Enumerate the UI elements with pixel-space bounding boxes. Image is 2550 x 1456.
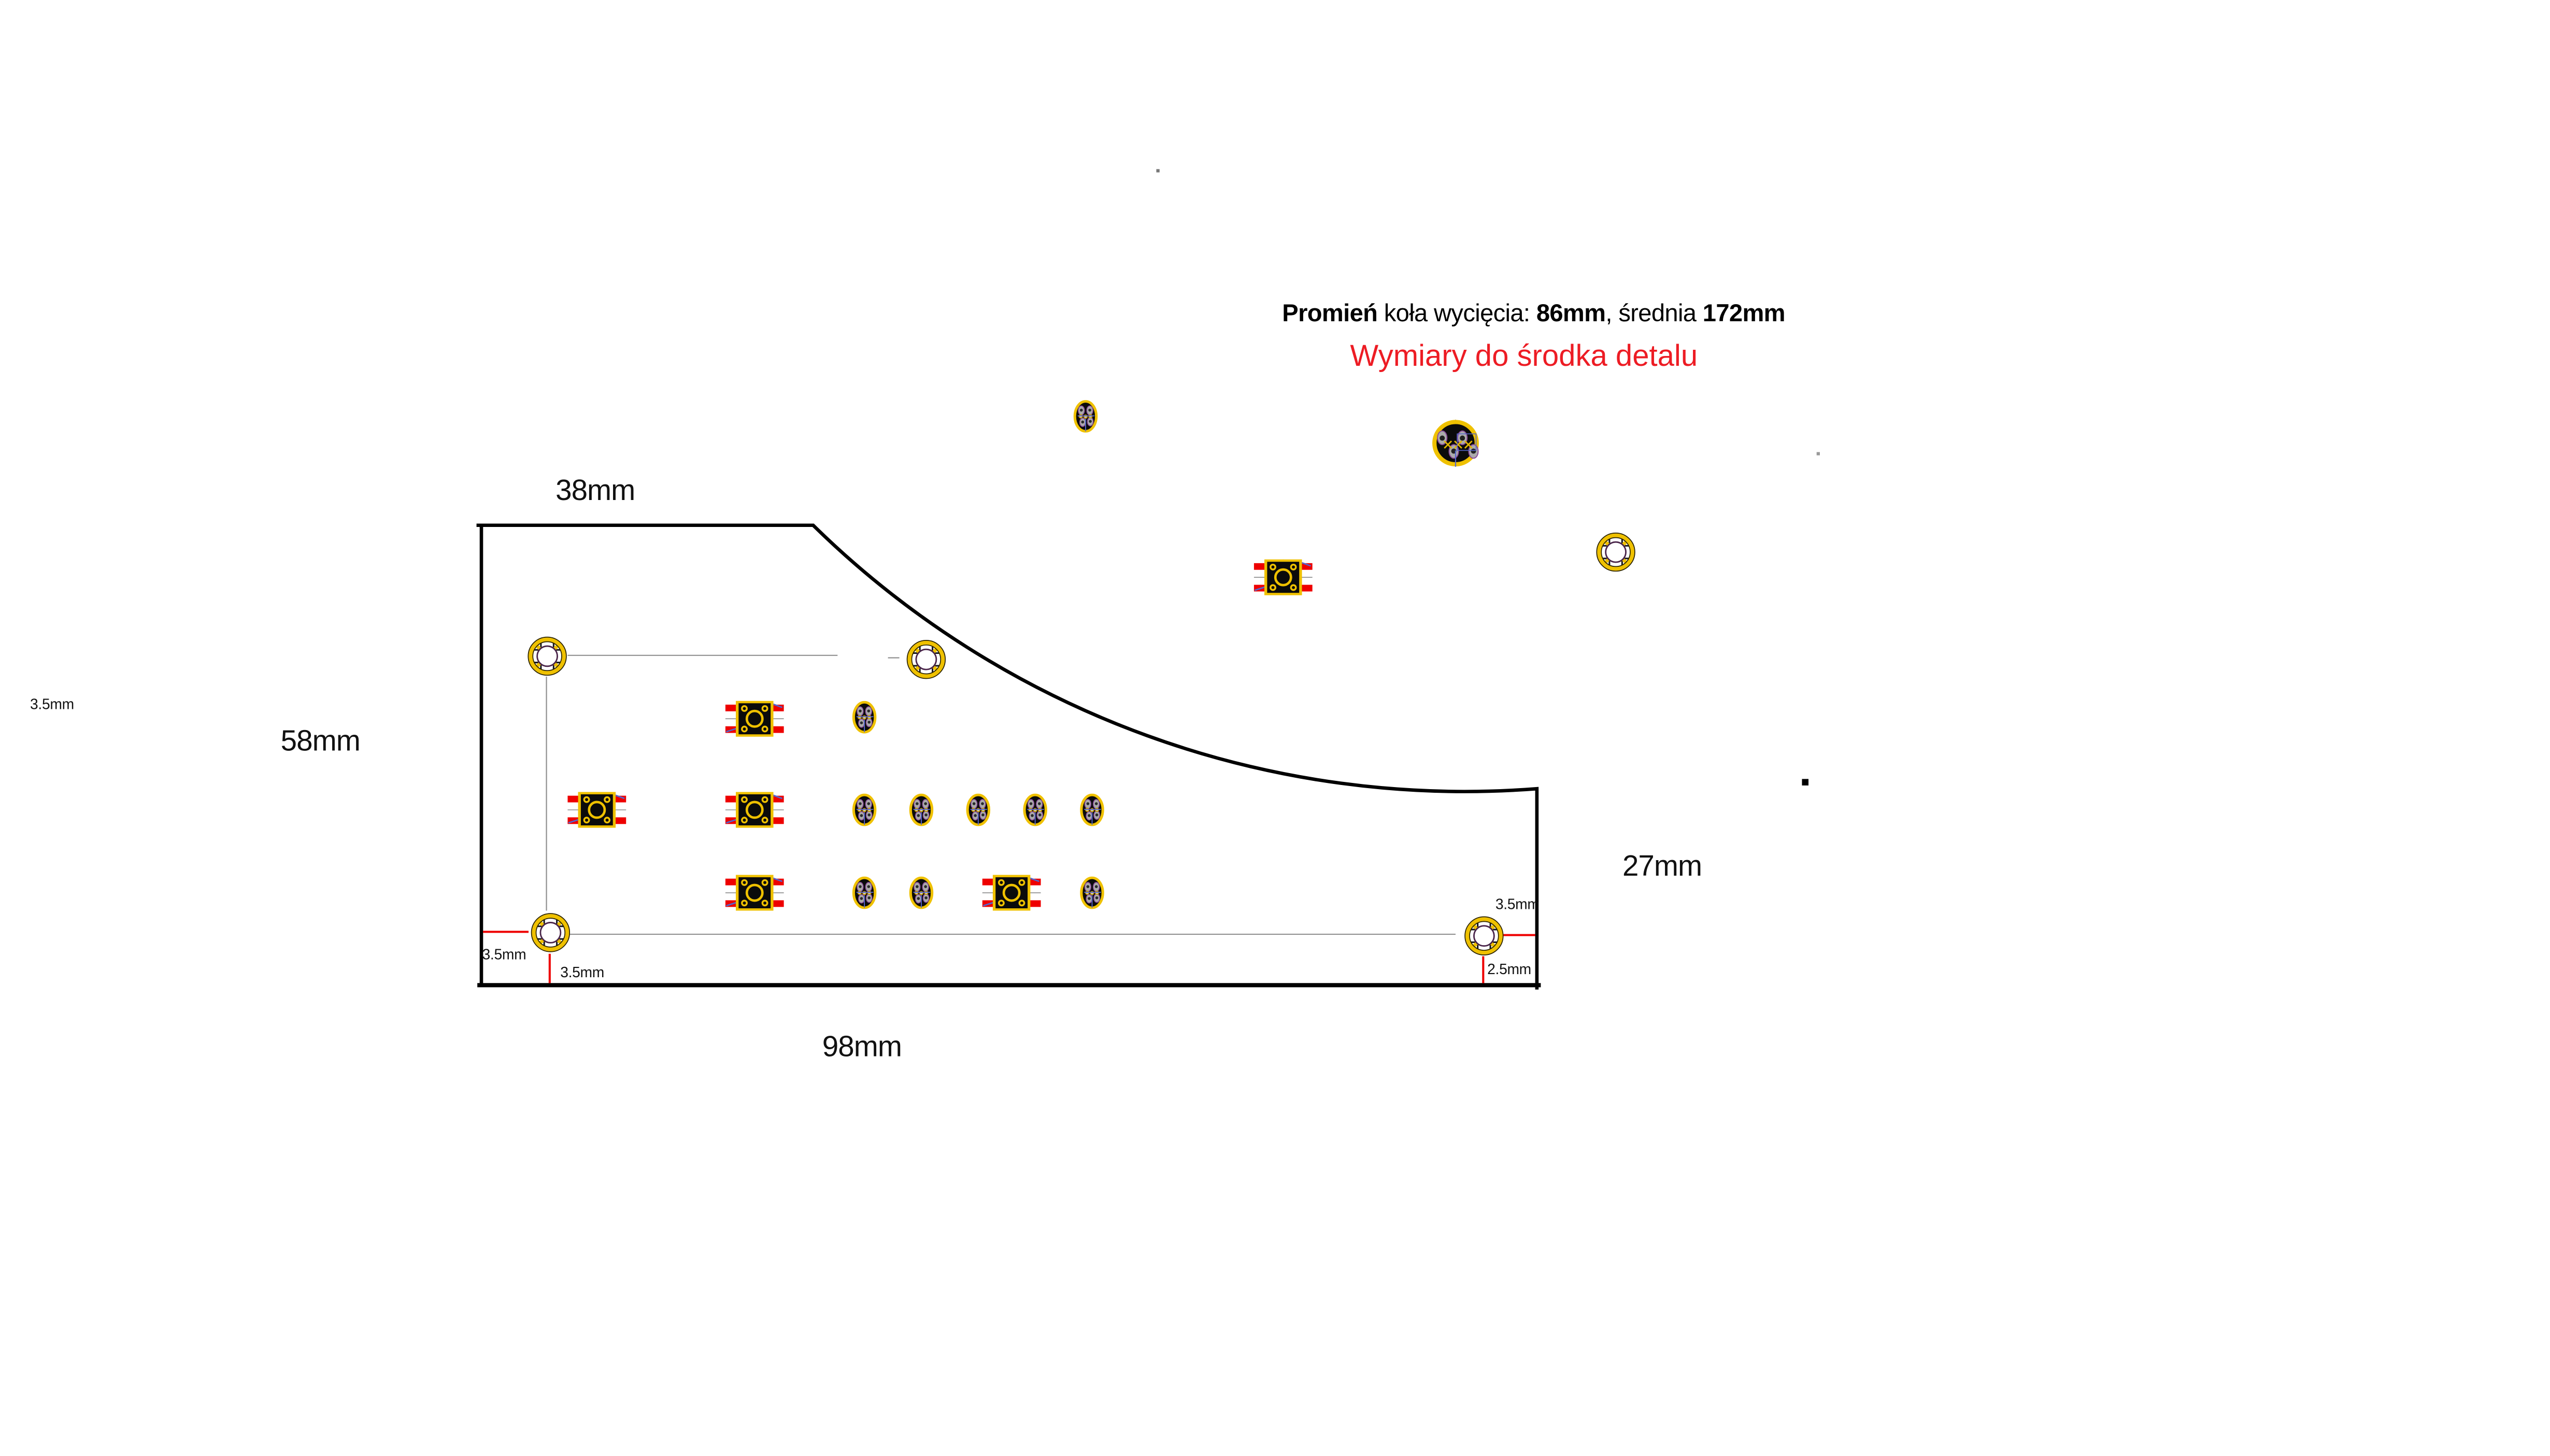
- small-button-footprint: [1079, 794, 1103, 826]
- trimmer-footprint: [1431, 417, 1480, 467]
- small-button-footprint: [851, 794, 876, 826]
- stray-speck: [1817, 452, 1820, 456]
- small-button-footprint-glyph: [851, 701, 876, 734]
- cutout-note-segment: 172mm: [1703, 300, 1785, 327]
- mounting-hole-glyph: [905, 638, 946, 679]
- small-button-footprint: [851, 701, 876, 734]
- tact-switch-glyph: [982, 875, 1041, 911]
- small-button-footprint: [965, 794, 990, 826]
- dimensions-reference-note: Wymiary do środka detalu: [1350, 338, 1698, 374]
- cutout-note-segment: , średnia: [1605, 300, 1702, 327]
- tact-switch-glyph: [567, 792, 626, 827]
- small-button-footprint: [908, 877, 933, 909]
- board-outline-top-and-arc-and-right: [477, 525, 1537, 990]
- dim-hole-br-y: 2.5mm: [1487, 961, 1531, 977]
- dim-hole-br-x: 3.5mm: [1495, 896, 1540, 912]
- stray-speck: [1156, 169, 1159, 173]
- tact-switch: [1254, 560, 1313, 595]
- dim-hole-bl-x: 3.5mm: [482, 947, 526, 963]
- mounting-hole: [1463, 915, 1503, 955]
- tact-switch-glyph: [725, 701, 784, 737]
- drawing-scale-wrapper: Promień koła wycięcia: 86mm, średnia 172…: [0, 0, 2550, 1455]
- small-button-footprint-glyph: [1022, 794, 1047, 826]
- tact-switch-glyph: [725, 792, 784, 827]
- mounting-hole: [530, 911, 570, 952]
- red-dimension-lines: [483, 932, 1535, 983]
- dim-right-height: 27mm: [1622, 850, 1702, 884]
- small-button-footprint: [1079, 877, 1103, 909]
- small-button-footprint-glyph: [1079, 877, 1103, 909]
- small-button-footprint-glyph: [908, 877, 933, 909]
- small-button-footprint: [1073, 400, 1097, 433]
- mounting-hole-glyph: [530, 911, 570, 952]
- stray-speck: [1802, 779, 1808, 786]
- dim-hole-bl-y: 3.5mm: [560, 964, 604, 980]
- small-button-footprint-glyph: [851, 794, 876, 826]
- small-button-footprint-glyph: [965, 794, 990, 826]
- dim-top-width: 38mm: [555, 474, 635, 508]
- tact-switch-glyph: [725, 875, 784, 911]
- cutout-note-segment: koła wycięcia:: [1377, 300, 1536, 327]
- tact-switch: [567, 792, 626, 827]
- mounting-hole: [905, 638, 946, 679]
- tact-switch: [725, 875, 784, 911]
- cutout-radius-note: Promień koła wycięcia: 86mm, średnia 172…: [1282, 300, 1785, 327]
- cutout-note-segment: Promień: [1282, 300, 1377, 327]
- dim-bottom-width: 98mm: [822, 1030, 902, 1064]
- dim-margin-left: 3.5mm: [30, 696, 74, 712]
- small-button-footprint: [851, 877, 876, 909]
- small-button-footprint: [1022, 794, 1047, 826]
- tact-switch: [725, 701, 784, 737]
- tact-switch-glyph: [1254, 560, 1313, 595]
- mounting-hole-glyph: [526, 635, 566, 676]
- cutout-note-segment: 86mm: [1536, 300, 1606, 327]
- mounting-hole: [526, 635, 566, 676]
- small-button-footprint-glyph: [1073, 400, 1097, 433]
- small-button-footprint: [908, 794, 933, 826]
- small-button-footprint-glyph: [908, 794, 933, 826]
- board-outline-and-dimension-lines: [0, 0, 2550, 1455]
- trimmer-footprint-glyph: [1431, 417, 1480, 467]
- dim-left-height: 58mm: [281, 724, 360, 759]
- mounting-hole: [1594, 531, 1635, 572]
- small-button-footprint-glyph: [1079, 794, 1103, 826]
- small-button-footprint-glyph: [851, 877, 876, 909]
- tact-switch: [982, 875, 1041, 911]
- mounting-hole-glyph: [1463, 915, 1503, 955]
- mounting-hole-glyph: [1594, 531, 1635, 572]
- tact-switch: [725, 792, 784, 827]
- pcb-dimension-drawing: Promień koła wycięcia: 86mm, średnia 172…: [0, 0, 2550, 1455]
